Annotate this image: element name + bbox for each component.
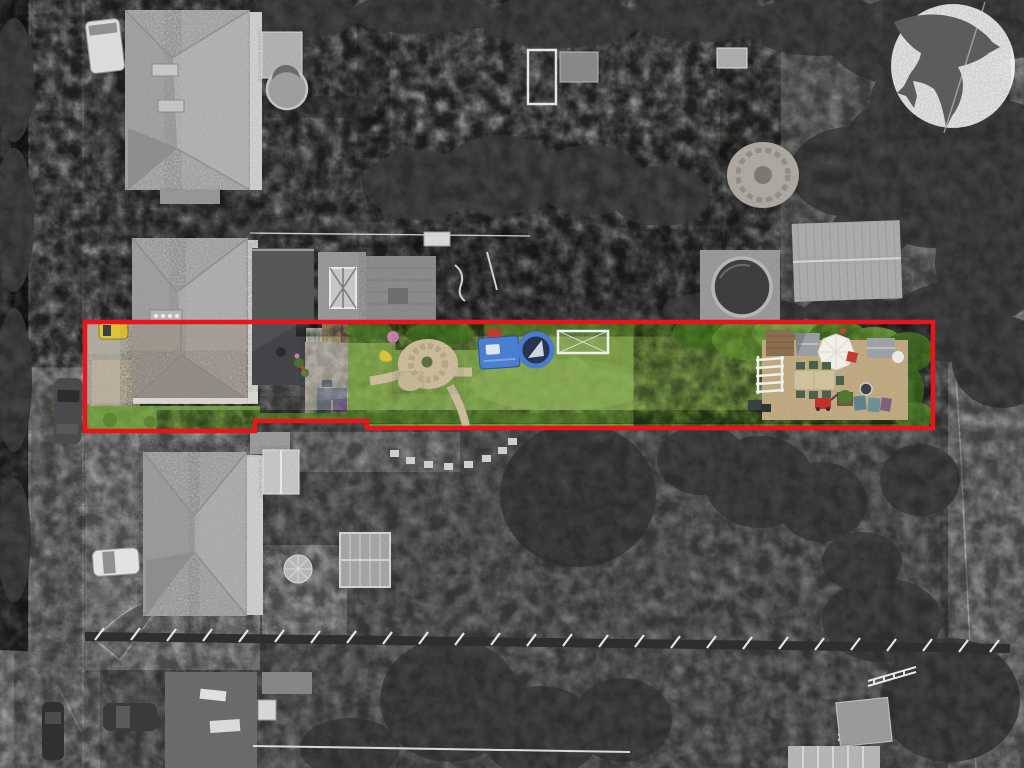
plot-neighbour-lawn <box>430 238 700 322</box>
house-a <box>125 10 262 204</box>
barn <box>792 220 903 302</box>
wood-deck <box>766 330 794 356</box>
suv-by-plot <box>53 378 83 445</box>
parked-van <box>85 18 125 74</box>
parasol-gray <box>284 555 312 583</box>
red-chair <box>846 351 858 363</box>
greenhouse <box>340 533 390 587</box>
goal-frame <box>558 331 608 353</box>
yellow-car <box>99 322 128 339</box>
hot-tub <box>713 258 771 316</box>
blue-table <box>478 336 520 370</box>
planter <box>837 390 853 406</box>
gazebo-roof <box>795 333 820 356</box>
white-car <box>92 547 140 576</box>
aerial-photo <box>0 0 1024 768</box>
white-table <box>892 351 904 363</box>
tan-shed <box>322 322 348 342</box>
extension-roof <box>252 318 308 385</box>
plot-house-roof <box>132 318 258 404</box>
paddling-pool <box>520 334 552 366</box>
red-item <box>487 329 501 337</box>
small-shed <box>867 338 895 358</box>
highlighted-plot <box>84 315 934 434</box>
